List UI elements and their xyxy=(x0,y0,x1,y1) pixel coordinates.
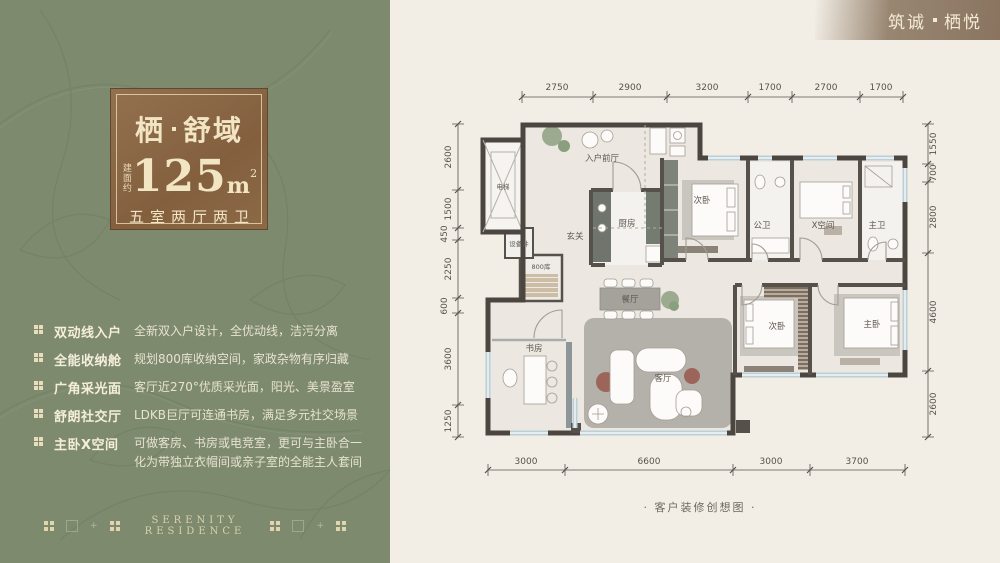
dim-top-2: 3200 xyxy=(696,83,719,93)
feature-desc: 客厅近270°优质采光面，阳光、美景盈室 xyxy=(134,378,370,397)
feature-label: 广角采光面 xyxy=(54,378,126,397)
room-layout: 五室两厅两卫 xyxy=(123,206,255,227)
square-separator-icon xyxy=(172,127,176,131)
feature-item: 广角采光面 客厅近270°优质采光面，阳光、美景盈室 xyxy=(34,378,370,397)
plus-dot-icon: + xyxy=(90,522,98,531)
plan-caption: · 客户装修创想图 · xyxy=(590,499,810,515)
feature-desc: 可做客房、书房或电竞室，更可与主卧合一化为带独立衣帽间或亲子室的全能主人套间 xyxy=(134,434,370,471)
room-label-shaft: 设备井 xyxy=(509,239,529,248)
feature-desc: LDKB巨厅可连通书房，满足多元社交场景 xyxy=(134,406,370,425)
square-cluster-icon xyxy=(110,521,120,531)
area-badge: 栖 舒域 建面约 125 m 2 五室两厅两卫 xyxy=(110,88,268,230)
square-cluster-icon xyxy=(336,521,346,531)
dim-top-3: 1700 xyxy=(759,83,782,93)
square-separator-icon xyxy=(933,18,937,22)
english-subtitle: SERENITY RESIDENCE xyxy=(120,515,271,537)
square-cluster-icon xyxy=(270,521,280,531)
room-label-bath-master: 主卫 xyxy=(868,220,886,231)
dim-left-6: 1250 xyxy=(444,409,454,432)
feature-label: 全能收纳舱 xyxy=(54,350,126,369)
right-motif: + xyxy=(270,520,346,532)
square-cluster-icon xyxy=(34,325,43,334)
feature-item: 双动线入户 全新双入户设计，全优动线，洁污分离 xyxy=(34,322,370,341)
room-label-elevator: 电梯 xyxy=(497,182,511,191)
square-cluster-icon xyxy=(34,353,43,362)
dim-top-0: 2750 xyxy=(546,83,569,93)
product-title-part2: 舒域 xyxy=(183,109,243,149)
room-label-storage: 800库 xyxy=(532,262,551,271)
dim-top-1: 2900 xyxy=(619,83,642,93)
room-label-bedroom2-bottom: 次卧 xyxy=(768,321,786,332)
room-label-kitchen: 厨房 xyxy=(618,218,635,229)
feature-item: 全能收纳舱 规划800库收纳空间，家政杂物有序归藏 xyxy=(34,350,370,369)
faint-square-icon xyxy=(66,520,78,532)
square-cluster-icon xyxy=(44,521,54,531)
area-number: 125 xyxy=(132,155,227,199)
product-title: 栖 舒域 xyxy=(135,109,243,149)
room-label-study: 书房 xyxy=(525,343,542,354)
area-exponent: 2 xyxy=(250,168,257,179)
info-panel: 栖 舒域 建面约 125 m 2 五室两厅两卫 双动线入户 全新双入户设计，全优… xyxy=(0,0,390,563)
dim-top-4: 2700 xyxy=(815,83,838,93)
area-figure: 建面约 125 m 2 xyxy=(121,155,257,199)
dim-right-3: 4600 xyxy=(929,300,939,323)
room-label-hall: 玄关 xyxy=(566,231,584,242)
room-label-dining: 餐厅 xyxy=(621,295,639,305)
dim-left-0: 2600 xyxy=(444,145,454,168)
brand-part2: 栖悦 xyxy=(944,8,982,33)
feature-desc: 全新双入户设计，全优动线，洁污分离 xyxy=(134,322,370,341)
dim-bottom-2: 3000 xyxy=(760,457,783,467)
room-label-bath-public: 公卫 xyxy=(753,221,771,231)
dim-left-3: 2250 xyxy=(444,257,454,280)
area-prefix: 建面约 xyxy=(121,163,130,193)
brand-part1: 筑诚 xyxy=(888,8,926,33)
feature-label: 主卧X空间 xyxy=(54,434,126,453)
room-label-living: 客厅 xyxy=(654,373,672,384)
brand-banner: 筑诚 栖悦 xyxy=(815,0,1000,40)
feature-item: 舒朗社交厅 LDKB巨厅可连通书房，满足多元社交场景 xyxy=(34,406,370,425)
feature-desc: 规划800库收纳空间，家政杂物有序归藏 xyxy=(134,350,370,369)
dim-right-1: 700 xyxy=(929,164,939,181)
room-label-x-space: X空间 xyxy=(812,220,835,231)
area-unit: m xyxy=(227,175,250,197)
poster: 栖 舒域 建面约 125 m 2 五室两厅两卫 双动线入户 全新双入户设计，全优… xyxy=(0,0,1000,563)
feature-list: 双动线入户 全新双入户设计，全优动线，洁污分离 全能收纳舱 规划800库收纳空间… xyxy=(34,322,370,480)
feature-item: 主卧X空间 可做客房、书房或电竞室，更可与主卧合一化为带独立衣帽间或亲子室的全能… xyxy=(34,434,370,471)
panel-footer: + SERENITY RESIDENCE + xyxy=(0,515,390,537)
room-label-bedroom2-top: 次卧 xyxy=(693,195,711,206)
left-motif: + xyxy=(44,520,120,532)
feature-label: 双动线入户 xyxy=(54,322,126,341)
floor-plan: 电梯 入户前厅 玄关 设备井 800库 厨房 次卧 公卫 X空间 主卫 书房 餐… xyxy=(440,72,975,492)
dim-bottom-0: 3000 xyxy=(515,457,538,467)
square-cluster-icon xyxy=(34,409,43,418)
room-label-master: 主卧 xyxy=(863,319,881,330)
dim-top-5: 1700 xyxy=(870,83,893,93)
product-title-part1: 栖 xyxy=(135,109,165,149)
dim-bottom-1: 6600 xyxy=(638,457,661,467)
dim-left-4: 600 xyxy=(440,297,450,314)
dim-bottom-3: 3700 xyxy=(846,457,869,467)
plus-dot-icon: + xyxy=(316,522,324,531)
square-cluster-icon xyxy=(34,381,43,390)
room-label-foyer: 入户前厅 xyxy=(585,153,620,164)
dim-left-5: 3600 xyxy=(444,347,454,370)
square-cluster-icon xyxy=(34,437,43,446)
dim-right-2: 2800 xyxy=(929,205,939,228)
dim-left-1: 1500 xyxy=(444,197,454,220)
dim-right-0: 1550 xyxy=(929,132,939,155)
feature-label: 舒朗社交厅 xyxy=(54,406,126,425)
dim-left-2: 450 xyxy=(440,225,450,242)
faint-square-icon xyxy=(292,520,304,532)
dim-right-4: 2600 xyxy=(929,392,939,415)
